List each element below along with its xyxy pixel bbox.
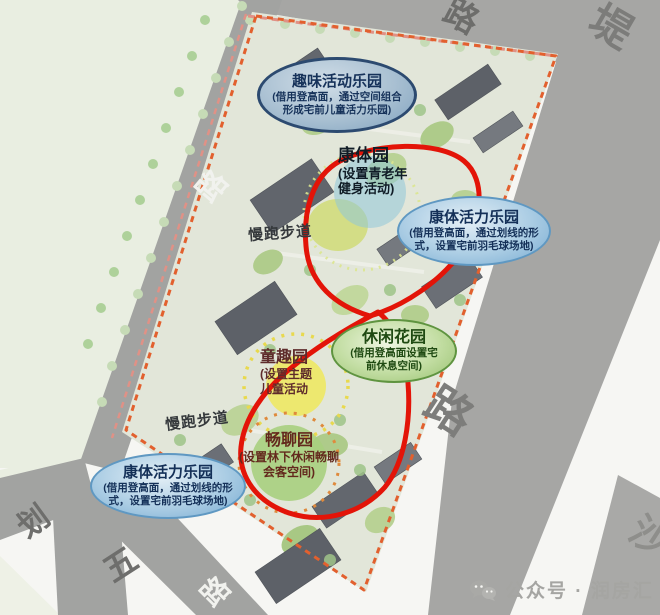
bubble-line: 前休息空间) [366,360,422,373]
bubble-leisure-garden: 休闲花园 (借用登高面设置宅 前休息空间) [331,319,457,383]
bubble-line: 形成宅前儿童活力乐园) [283,104,392,117]
bubble-title: 休闲花园 [362,329,426,347]
bubble-fitness-vitality-right: 康体活力乐园 (借用登高面，通过划线的形 式，设置宅前羽毛球场地) [397,196,551,266]
watermark: 公众号 · 润房汇 [468,576,654,603]
bubble-line: 式，设置宅前羽毛球场地) [415,240,534,253]
spot-line: (设置青老年 [338,166,434,182]
spot-line: (设置主题 [260,367,342,382]
jogging-path-label-top: 慢跑步道 [247,220,312,245]
bubble-line: (借用登高面设置宅 [350,347,438,360]
spot-title: 畅聊园 [228,432,350,450]
spot-title: 康体园 [338,146,434,166]
bubble-fitness-vitality-left: 康体活力乐园 (借用登高面，通过划线的形 式，设置宅前羽毛球场地) [90,453,246,519]
spot-fitness-park: 康体园 (设置青老年 健身活动) [338,146,434,197]
bubble-line: (借用登高面，通过划线的形 [409,227,539,240]
watermark-text: 公众号 · 润房汇 [505,576,654,603]
landscape-plan-screenshot: 路 堤 路 路 划 五 路 沙 慢跑步道 慢跑步道 趣味活动乐园 (借用登高面，… [0,0,660,615]
bubble-line: 式，设置宅前羽毛球场地) [109,495,228,508]
bubble-line: (借用登高面，通过划线的形 [103,482,233,495]
bubble-title: 康体活力乐园 [123,464,213,481]
spot-line: 儿童活动 [260,382,342,397]
bubble-line: (借用登高面，通过空间组合 [272,91,402,104]
bubble-fun-activity-park: 趣味活动乐园 (借用登高面，通过空间组合 形成宅前儿童活力乐园) [257,57,417,133]
spot-line: 会客空间) [228,465,350,480]
bubble-title: 康体活力乐园 [429,209,519,226]
spot-title: 童趣园 [260,349,342,367]
spot-kids-park: 童趣园 (设置主题 儿童活动 [260,349,342,397]
spot-line: 健身活动) [338,181,434,197]
spot-line: (设置林下休闲畅聊 [228,450,350,465]
wechat-icon [468,578,498,602]
spot-chat-garden: 畅聊园 (设置林下休闲畅聊 会客空间) [228,432,350,480]
bubble-title: 趣味活动乐园 [292,73,382,90]
